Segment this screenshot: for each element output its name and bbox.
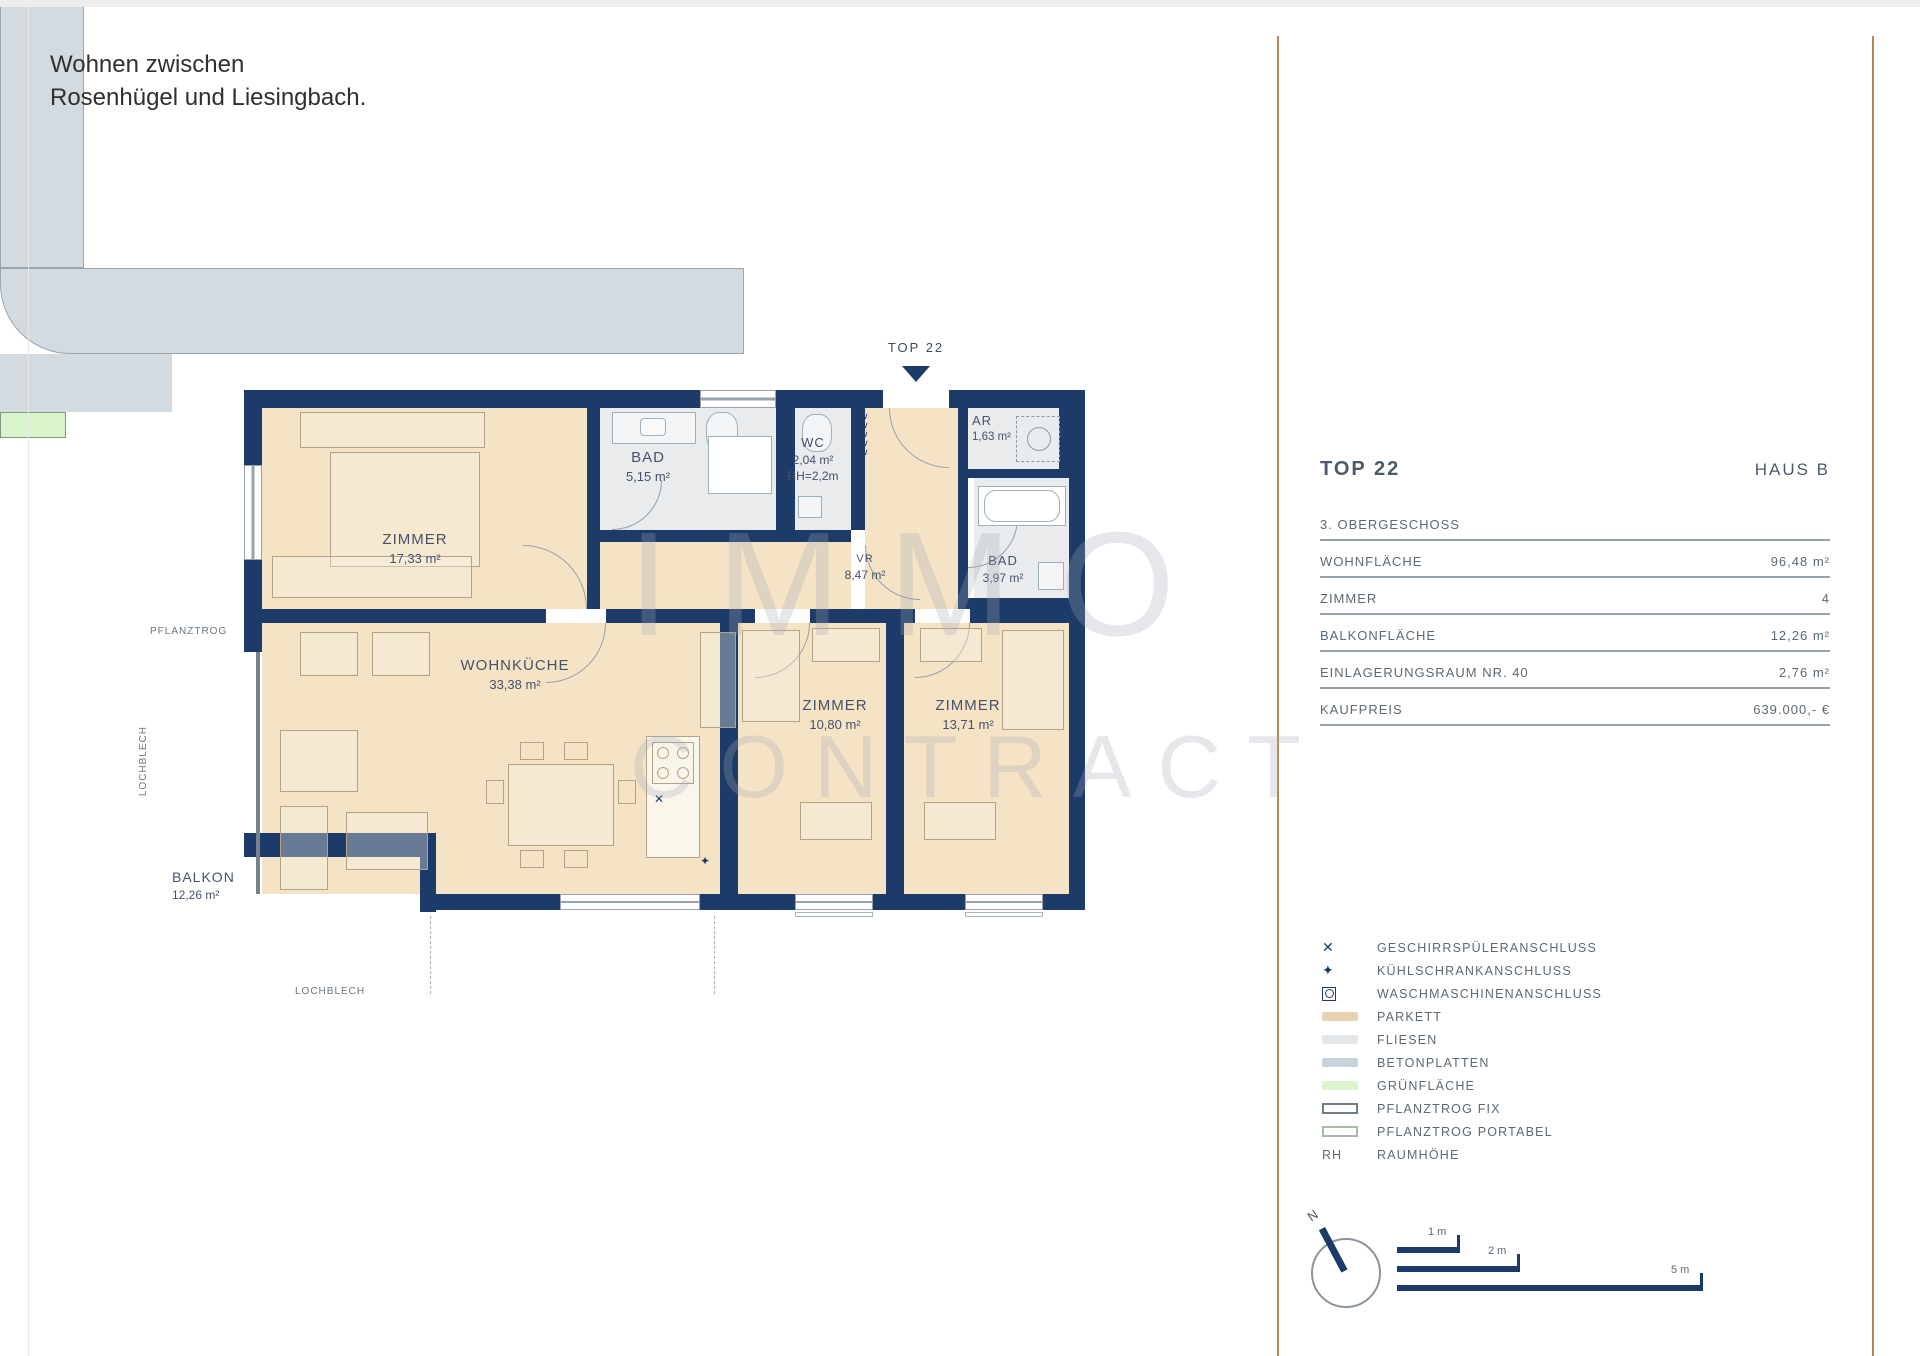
legend-label: WASCHMASCHINENANSCHLUSS (1377, 987, 1602, 1001)
gruenflaeche-swatch (1322, 1081, 1377, 1090)
pflanztrog-portabel-swatch (1322, 1126, 1377, 1137)
gruenflaeche-swatch (1322, 1081, 1358, 1090)
washing-machine-connection-icon (1322, 987, 1336, 1001)
balcony-strip-left (0, 0, 84, 268)
wall (244, 560, 262, 652)
legend-label: KÜHLSCHRANKANSCHLUSS (1377, 964, 1572, 978)
page-title-line1: Wohnen zwischen (50, 48, 366, 81)
unit-title-row: TOP 22 HAUS B (1320, 458, 1830, 481)
chair-outline (520, 742, 544, 760)
table-row-value: 639.000,- € (1753, 702, 1830, 717)
legend-row: BETONPLATTEN (1322, 1051, 1762, 1074)
dining-table-outline (508, 764, 614, 846)
washing-machine-drum-icon (1027, 427, 1051, 451)
chair-outline (486, 780, 504, 804)
room-label-zimmer-1: ZIMMER 17,33 m² (345, 530, 485, 568)
scalebar-label: 2 m (1488, 1245, 1506, 1257)
fridge-connection-icon: ✦ (1322, 962, 1377, 979)
wardrobe-outline (300, 412, 485, 448)
room-label-wohnkueche: WOHNKÜCHE 33,38 m² (440, 656, 590, 694)
shower-outline (708, 436, 772, 494)
table-row-label: 3. OBERGESCHOSS (1320, 517, 1460, 532)
sofa-outline (280, 806, 328, 890)
parkett-swatch (1322, 1012, 1358, 1021)
shelf-outline (300, 632, 358, 676)
house-label: HAUS B (1755, 460, 1830, 480)
watermark-line2: CONTRACT (630, 716, 1327, 818)
table-row: KAUFPREIS639.000,- € (1320, 689, 1830, 726)
lochblech-bottom-label: LOCHBLECH (295, 986, 365, 997)
parkett-swatch (1322, 1012, 1377, 1021)
scalebar (1397, 1266, 1520, 1272)
room-label-wc: WC 2,04 m² RH=2,2m (780, 434, 846, 484)
table-row-value: 2,76 m² (1779, 665, 1830, 680)
balcony-joint-line (430, 916, 431, 994)
legend: ✕GESCHIRRSPÜLERANSCHLUSS✦KÜHLSCHRANKANSC… (1322, 936, 1762, 1166)
window (795, 894, 873, 910)
door-seal-chevrons: ∨∨∨∨∨ (862, 412, 869, 457)
window (244, 465, 262, 560)
unit-title: TOP 22 (1320, 458, 1400, 481)
pflanztrog-fix-swatch (1322, 1103, 1358, 1114)
table-row: BALKONFLÄCHE12,26 m² (1320, 615, 1830, 652)
wall (244, 390, 262, 465)
legend-label: PFLANZTROG PORTABEL (1377, 1125, 1553, 1139)
page-left-guide (28, 7, 29, 1356)
scalebar-tick (1517, 1254, 1520, 1270)
scalebar (1397, 1285, 1703, 1291)
wall (244, 609, 546, 623)
scalebar-label: 5 m (1671, 1264, 1689, 1276)
balcony-joint-line (714, 916, 715, 994)
pflanztrog-fix-swatch (1322, 1103, 1377, 1114)
betonplatten-swatch (1322, 1058, 1377, 1067)
floorplan-page: Wohnen zwischen Rosenhügel und Liesingba… (0, 0, 1920, 1356)
chair-outline (564, 850, 588, 868)
gold-divider-right (1872, 36, 1874, 1356)
coffee-table-outline (346, 812, 428, 870)
rh-abbreviation: RH (1322, 1148, 1377, 1162)
pflanztrog-label: PFLANZTROG (150, 626, 227, 637)
table-row: WOHNFLÄCHE96,48 m² (1320, 541, 1830, 578)
legend-row: WASCHMASCHINENANSCHLUSS (1322, 982, 1762, 1005)
info-table: 3. OBERGESCHOSSWOHNFLÄCHE96,48 m²ZIMMER4… (1320, 504, 1830, 726)
table-row: 3. OBERGESCHOSS (1320, 504, 1830, 541)
scalebar-tick (1457, 1235, 1460, 1251)
window-sill (795, 912, 873, 917)
info-table-rows: 3. OBERGESCHOSSWOHNFLÄCHE96,48 m²ZIMMER4… (1320, 504, 1830, 726)
chair-outline (564, 742, 588, 760)
scalebar-label: 1 m (1428, 1226, 1446, 1238)
legend-row: PFLANZTROG PORTABEL (1322, 1120, 1762, 1143)
dishwasher-connection-icon: ✕ (1322, 939, 1334, 956)
table-row-label: ZIMMER (1320, 591, 1377, 606)
legend-rows: ✕GESCHIRRSPÜLERANSCHLUSS✦KÜHLSCHRANKANSC… (1322, 936, 1762, 1166)
washbasin-outline (640, 418, 666, 436)
fridge-connection-icon: ✦ (700, 854, 710, 868)
scalebar-tick (1700, 1273, 1703, 1289)
legend-row: RHRAUMHÖHE (1322, 1143, 1762, 1166)
legend-row: FLIESEN (1322, 1028, 1762, 1051)
room-label-bad-1: BAD 5,15 m² (598, 448, 698, 486)
balcony-sliding-door (560, 894, 700, 910)
window-sill (965, 912, 1043, 917)
wall (965, 469, 1069, 478)
window (700, 390, 776, 408)
wall (587, 390, 600, 609)
legend-row: ✦KÜHLSCHRANKANSCHLUSS (1322, 959, 1762, 982)
legend-label: BETONPLATTEN (1377, 1056, 1490, 1070)
compass-circle (1311, 1238, 1381, 1308)
fliesen-swatch (1322, 1035, 1358, 1044)
dishwasher-connection-icon: ✕ (1322, 939, 1377, 956)
planter-green-area (0, 412, 66, 438)
chair-outline (520, 850, 544, 868)
washing-machine-connection-icon (1322, 987, 1377, 1001)
legend-label: GESCHIRRSPÜLERANSCHLUSS (1377, 941, 1597, 955)
entrance-label: TOP 22 (880, 340, 952, 355)
legend-label: RAUMHÖHE (1377, 1148, 1460, 1162)
legend-label: GRÜNFLÄCHE (1377, 1079, 1475, 1093)
table-row: EINLAGERUNGSRAUM NR. 402,76 m² (1320, 652, 1830, 689)
watermark-line1: IMMO (628, 500, 1223, 670)
lochblech-left-label: LOCHBLECH (138, 726, 149, 796)
shelf-outline (372, 632, 430, 676)
fliesen-swatch (1322, 1035, 1377, 1044)
legend-row: PARKETT (1322, 1005, 1762, 1028)
fridge-connection-icon: ✦ (1322, 962, 1334, 979)
balcony-corner-patch (0, 354, 172, 412)
table-row-label: KAUFPREIS (1320, 702, 1403, 717)
pflanztrog-portabel-swatch (1322, 1126, 1358, 1137)
rh-abbreviation: RH (1322, 1148, 1342, 1162)
compass-north-label: N (1305, 1207, 1321, 1225)
table-row-value: 4 (1822, 591, 1830, 606)
table-row: ZIMMER4 (1320, 578, 1830, 615)
table-row-label: EINLAGERUNGSRAUM NR. 40 (1320, 665, 1529, 680)
legend-row: ✕GESCHIRRSPÜLERANSCHLUSS (1322, 936, 1762, 959)
entrance-triangle-icon (902, 366, 930, 382)
compass: N (1300, 1200, 1420, 1330)
wall (949, 390, 1085, 408)
table-row-label: BALKONFLÄCHE (1320, 628, 1436, 643)
room-label-balkon: BALKON 12,26 m² (172, 868, 282, 903)
room-label-ar: AR 1,63 m² (972, 412, 1016, 445)
sofa-outline (280, 730, 358, 792)
table-row-value: 96,48 m² (1771, 554, 1830, 569)
table-row-label: WOHNFLÄCHE (1320, 554, 1422, 569)
scalebar (1397, 1247, 1460, 1253)
gold-divider-left (1277, 36, 1279, 1356)
legend-label: FLIESEN (1377, 1033, 1438, 1047)
page-title-line2: Rosenhügel und Liesingbach. (50, 81, 366, 114)
page-title: Wohnen zwischen Rosenhügel und Liesingba… (50, 48, 366, 114)
window (965, 894, 1043, 910)
legend-label: PFLANZTROG FIX (1377, 1102, 1501, 1116)
legend-row: GRÜNFLÄCHE (1322, 1074, 1762, 1097)
balcony-strip-bottom (0, 268, 744, 354)
legend-row: PFLANZTROG FIX (1322, 1097, 1762, 1120)
wall (1059, 408, 1085, 469)
legend-label: PARKETT (1377, 1010, 1442, 1024)
glass-front (256, 652, 260, 894)
page-top-border (0, 0, 1920, 7)
betonplatten-swatch (1322, 1058, 1358, 1067)
table-row-value: 12,26 m² (1771, 628, 1830, 643)
